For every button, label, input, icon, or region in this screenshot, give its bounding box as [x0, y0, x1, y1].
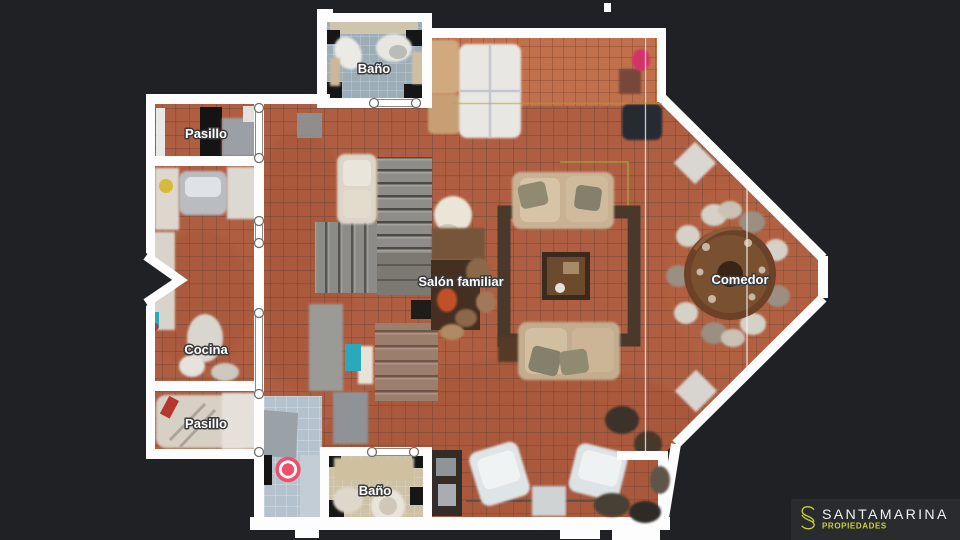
- svg-text:Cocina: Cocina: [184, 342, 228, 357]
- svg-text:Baño: Baño: [358, 61, 391, 76]
- svg-text:Pasillo: Pasillo: [185, 126, 227, 141]
- svg-text:Salón familiar: Salón familiar: [418, 274, 503, 289]
- svg-text:PROPIEDADES: PROPIEDADES: [822, 522, 887, 531]
- svg-text:Pasillo: Pasillo: [185, 416, 227, 431]
- svg-text:Comedor: Comedor: [711, 272, 768, 287]
- svg-text:Baño: Baño: [359, 483, 392, 498]
